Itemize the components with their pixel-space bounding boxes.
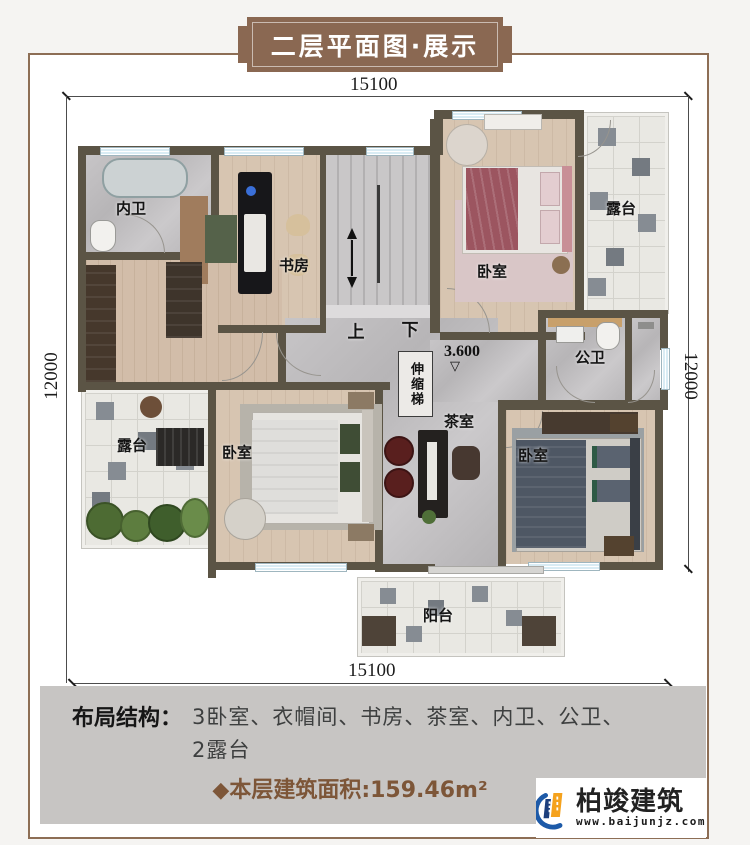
wall bbox=[498, 400, 662, 410]
toilet bbox=[90, 220, 116, 252]
tile bbox=[472, 586, 488, 602]
layout-line-1: 3卧室、衣帽间、书房、茶室、内卫、公卫、 bbox=[192, 701, 624, 731]
stairs-down-label: 下 bbox=[402, 316, 419, 341]
wall bbox=[538, 318, 546, 410]
wall bbox=[208, 382, 216, 578]
level-symbol: ▽ bbox=[450, 358, 460, 374]
room-label-bedroom-se: 卧室 bbox=[518, 445, 548, 466]
stairs-up-label: 上 bbox=[348, 318, 365, 343]
stair-rail bbox=[377, 185, 380, 283]
pillow bbox=[540, 172, 560, 206]
bed-sw-duvet bbox=[252, 420, 338, 514]
room-label-study: 书房 bbox=[279, 255, 309, 276]
pillow bbox=[340, 424, 360, 454]
brand-url[interactable]: www.baijunjz.com bbox=[576, 815, 706, 828]
sink bbox=[556, 326, 584, 343]
dresser bbox=[484, 114, 542, 130]
brand-logo-mark bbox=[536, 781, 572, 835]
tile bbox=[108, 462, 126, 480]
pillow bbox=[340, 462, 360, 492]
nightstand bbox=[610, 414, 638, 432]
tile bbox=[588, 278, 606, 296]
dim-left-value: 12000 bbox=[41, 352, 63, 400]
desk-pad bbox=[244, 214, 266, 272]
plant bbox=[120, 510, 152, 542]
plant bbox=[180, 498, 210, 538]
window bbox=[224, 147, 304, 156]
tile bbox=[606, 248, 624, 266]
pillow bbox=[592, 446, 631, 468]
wall bbox=[655, 410, 663, 570]
room-label-bath-public: 公卫 bbox=[575, 347, 605, 368]
page-title: 二层平面图·展示 bbox=[271, 27, 480, 63]
wall bbox=[78, 146, 86, 392]
wall bbox=[430, 119, 440, 333]
bathtub bbox=[102, 158, 188, 198]
tea-stool bbox=[384, 468, 414, 498]
window bbox=[255, 563, 347, 572]
tile bbox=[380, 588, 396, 604]
study-chair bbox=[286, 214, 310, 236]
wall bbox=[660, 310, 668, 350]
side-stool bbox=[552, 256, 570, 274]
retractable-ladder-label: 伸缩梯 bbox=[406, 362, 425, 407]
desk-item bbox=[246, 186, 256, 196]
headboard bbox=[630, 438, 640, 550]
dim-line-bottom bbox=[72, 683, 668, 684]
wall bbox=[538, 310, 668, 318]
dim-line-right bbox=[688, 96, 689, 572]
dim-bottom-value: 15100 bbox=[348, 660, 396, 682]
plant-pot bbox=[422, 510, 436, 524]
headboard bbox=[562, 166, 572, 252]
nightstand bbox=[348, 392, 374, 409]
wardrobe bbox=[166, 262, 202, 338]
wall bbox=[215, 382, 390, 390]
room-label-terrace-w: 露台 bbox=[117, 435, 147, 456]
window bbox=[366, 147, 414, 156]
window bbox=[661, 348, 670, 390]
balcony-post bbox=[522, 616, 556, 646]
stair-arrow-line bbox=[351, 240, 353, 276]
bed-ne-blanket bbox=[466, 168, 518, 250]
sliding-door-balcony bbox=[428, 566, 544, 574]
nightstand bbox=[604, 536, 634, 556]
nightstand bbox=[348, 524, 374, 541]
stair-arrow-down bbox=[347, 277, 357, 288]
room-label-bedroom-ne: 卧室 bbox=[477, 261, 507, 282]
terrace-bench bbox=[156, 428, 204, 466]
wall bbox=[498, 400, 506, 572]
headboard bbox=[362, 410, 373, 522]
armchair bbox=[452, 446, 480, 480]
pillow bbox=[540, 210, 560, 244]
tile bbox=[406, 626, 422, 642]
shower-head bbox=[638, 322, 654, 329]
brand-name: 柏竣建筑 bbox=[576, 789, 706, 815]
room-label-balcony: 阳台 bbox=[423, 605, 453, 626]
room-label-tea-room: 茶室 bbox=[444, 411, 474, 432]
plant bbox=[86, 502, 124, 540]
dim-line-left bbox=[66, 96, 67, 683]
dim-top-value: 15100 bbox=[350, 74, 398, 96]
tile bbox=[632, 158, 650, 176]
tea-table-runner bbox=[427, 442, 437, 500]
basket bbox=[140, 396, 162, 418]
tile bbox=[638, 214, 656, 232]
title-badge: 二层平面图·展示 bbox=[238, 17, 512, 72]
floor-area-text: ◆本层建筑面积:159.46m² bbox=[130, 772, 570, 804]
balcony-post bbox=[362, 616, 396, 646]
tea-stool bbox=[384, 436, 414, 466]
lounge-chair bbox=[446, 124, 488, 166]
brand-logo: 柏竣建筑 www.baijunjz.com bbox=[536, 778, 706, 838]
dim-line-top bbox=[66, 96, 688, 97]
wardrobe bbox=[86, 265, 116, 382]
window bbox=[100, 147, 170, 156]
tile bbox=[506, 610, 522, 626]
tile bbox=[96, 402, 114, 420]
dim-right-value: 12000 bbox=[679, 352, 701, 400]
layout-line-2: 2露台 bbox=[192, 734, 250, 764]
retractable-ladder-box: 伸缩梯 bbox=[398, 351, 433, 417]
stair-arrow-up bbox=[347, 228, 357, 239]
room-label-terrace-ne: 露台 bbox=[606, 198, 636, 219]
floor-plan-page: 二层平面图·展示 15100 12000 12000 15100 bbox=[0, 0, 750, 845]
wall bbox=[78, 382, 218, 390]
wall bbox=[320, 155, 326, 325]
room-label-bedroom-sw: 卧室 bbox=[222, 442, 252, 463]
layout-structure-label: 布局结构： bbox=[72, 700, 182, 732]
room-label-bath-ensuite: 内卫 bbox=[116, 198, 146, 219]
pillow bbox=[592, 480, 631, 502]
lounge-chair bbox=[224, 498, 266, 540]
study-rug bbox=[205, 215, 237, 263]
